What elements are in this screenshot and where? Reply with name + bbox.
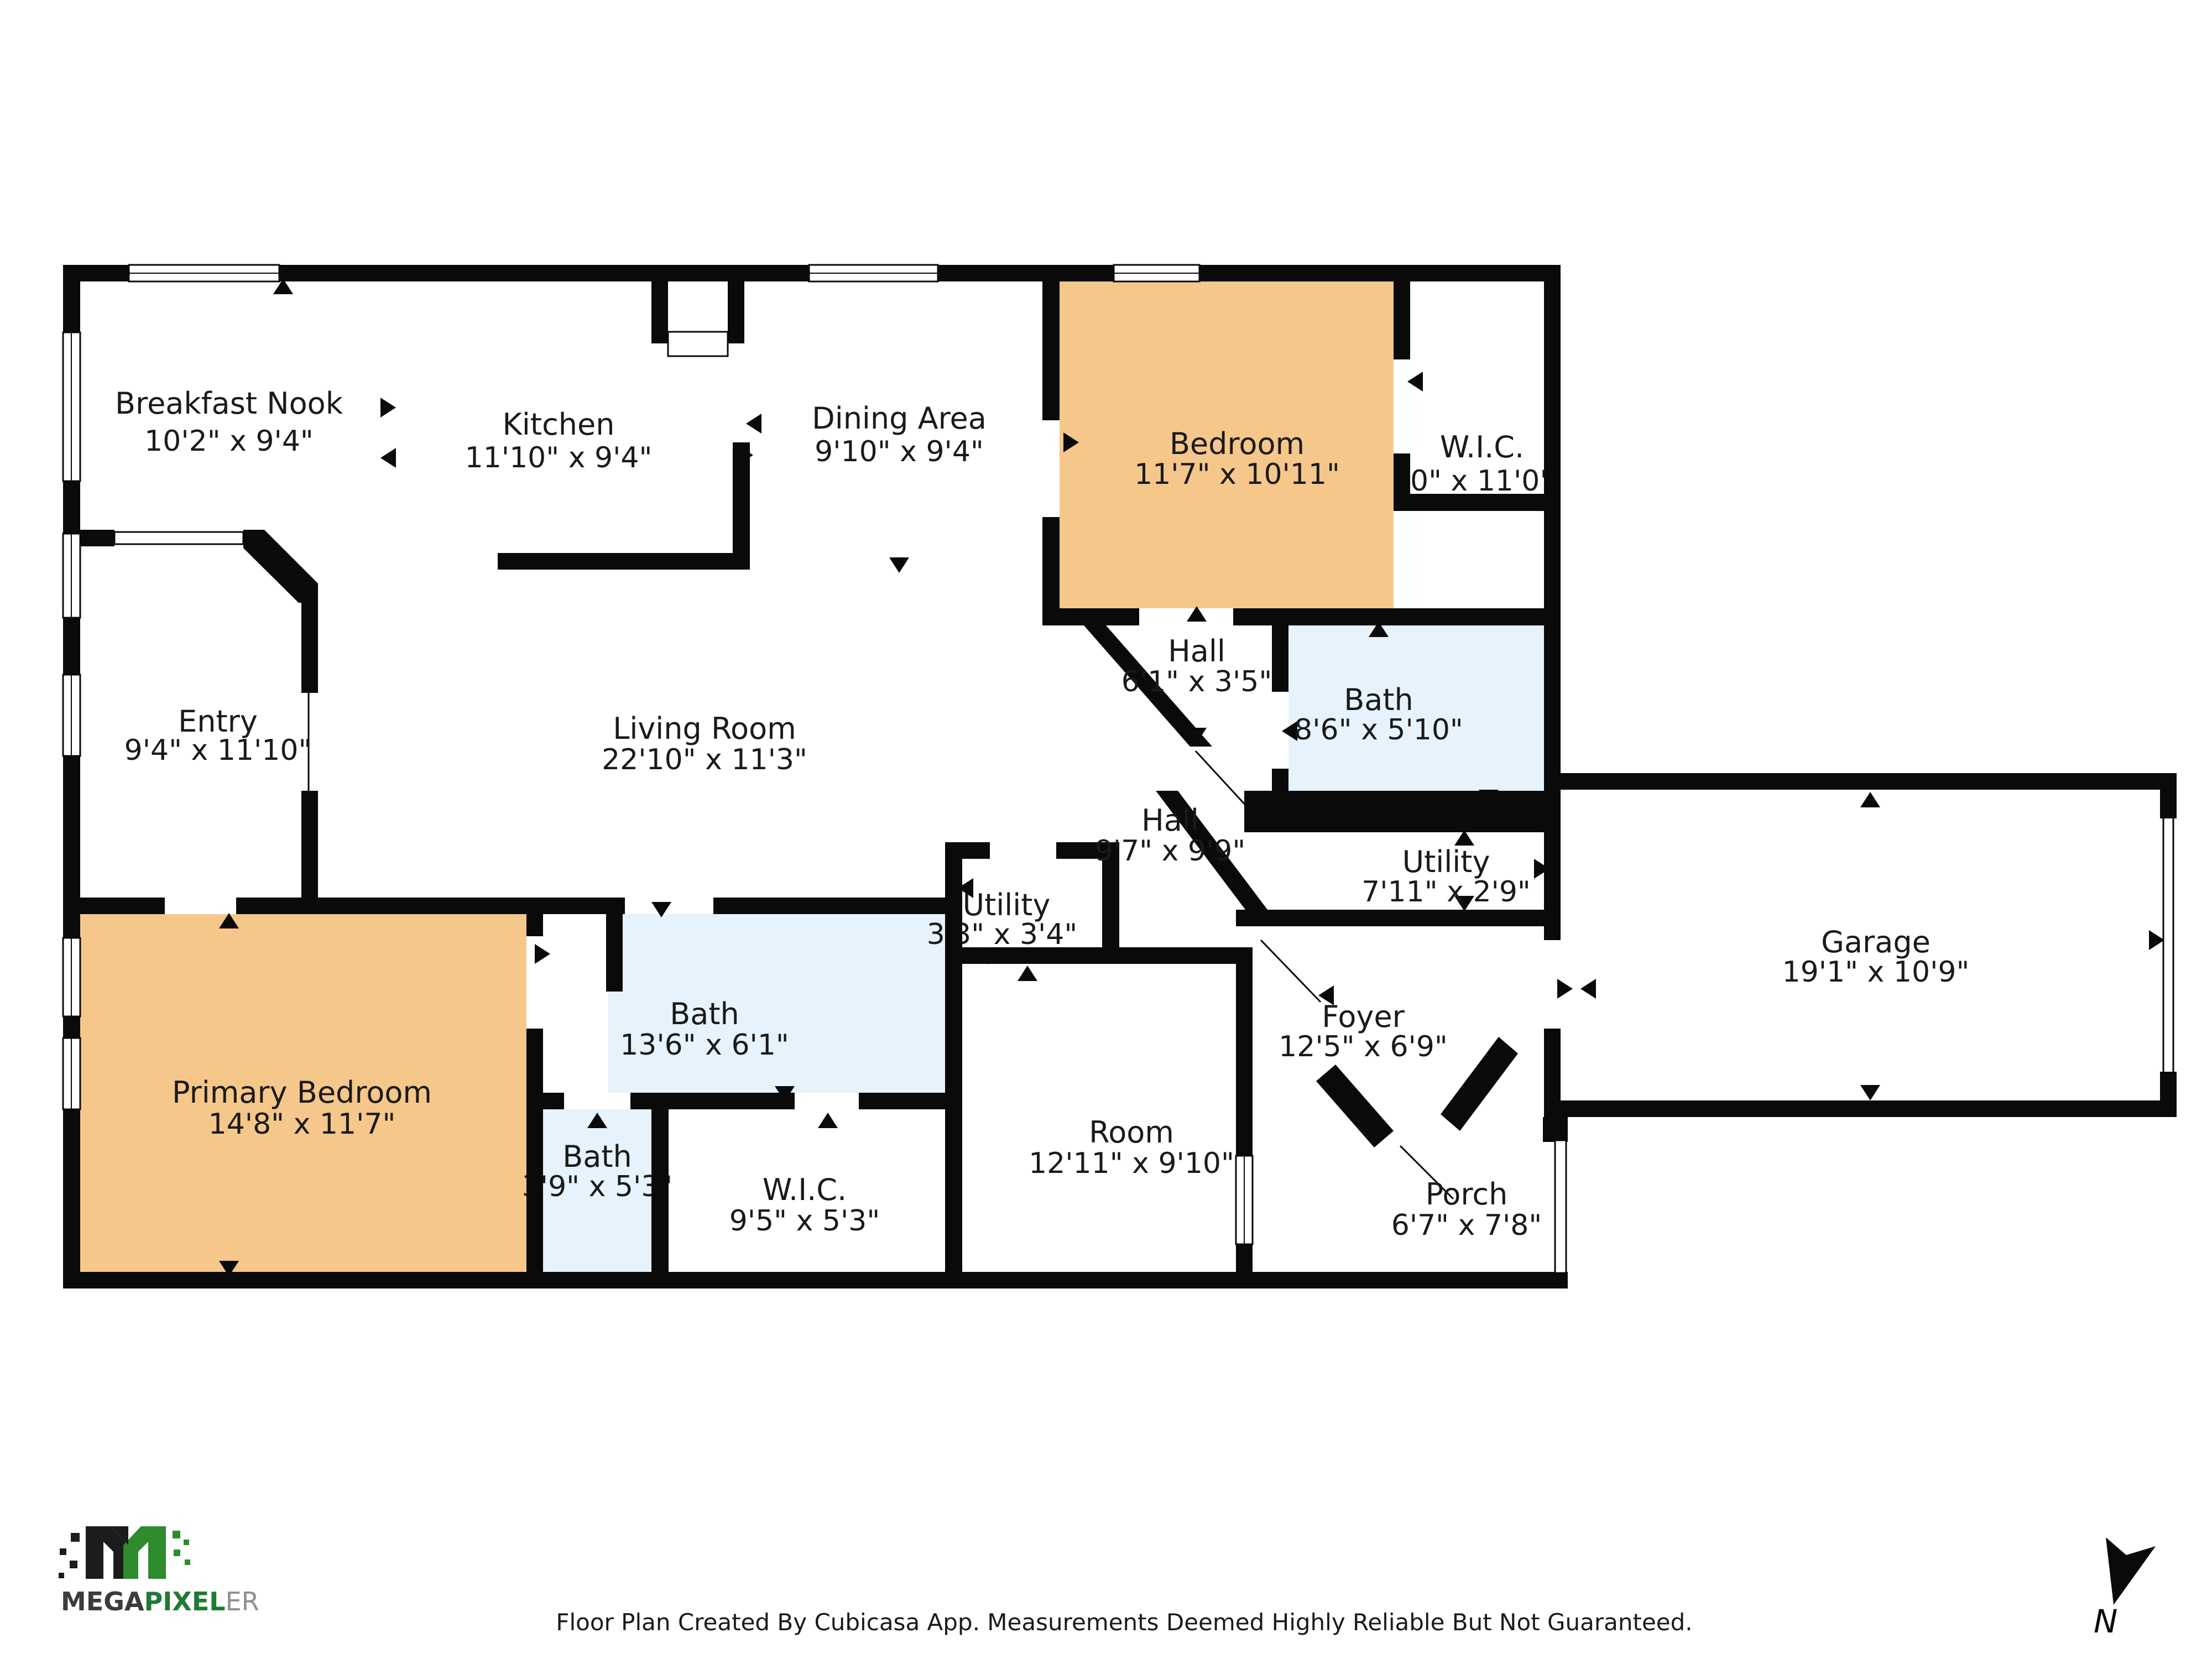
bath-small-dims: 3'9" x 5'3" [522, 1170, 673, 1203]
window-left-entry-2 [63, 675, 80, 756]
north-label: N [2094, 1603, 2117, 1640]
room-label-room: Room 12'11" x 9'10" [1029, 1115, 1234, 1180]
room-label-breakfast-nook: Breakfast Nook 10'2" x 9'4" [115, 386, 343, 458]
svg-text:Hall: Hall [1141, 803, 1199, 838]
svg-text:Living Room: Living Room [613, 711, 796, 746]
svg-text:Hall: Hall [1168, 634, 1225, 669]
window-top-breakfast [129, 265, 279, 281]
room-label-dining-area: Dining Area 9'10" x 9'4" [812, 401, 987, 468]
room-label-utility-right: Utility 7'11" x 2'9" [1361, 844, 1531, 909]
bath-upper-fill [1288, 625, 1544, 791]
svg-text:11'10" x 9'4": 11'10" x 9'4" [465, 441, 653, 474]
window-left-primary-2 [63, 1038, 80, 1109]
svg-text:Kitchen: Kitchen [503, 407, 615, 442]
room-label-hall-main: Hall 9'7" x 9'9" [1095, 803, 1246, 868]
svg-text:7'11" x 2'9": 7'11" x 2'9" [1361, 875, 1531, 909]
room-label-primary-bedroom: Primary Bedroom 14'8" x 11'7" [172, 1075, 432, 1141]
foyer-hall-door-leaf [1261, 940, 1321, 1002]
bath-main-fill [608, 914, 945, 1093]
svg-text:9'7" x 9'9": 9'7" x 9'9" [1095, 834, 1246, 868]
svg-text:6'1" x 3'5": 6'1" x 3'5" [1121, 665, 1272, 698]
north-arrow-icon [2106, 1537, 2156, 1605]
svg-text:9'10" x 9'4": 9'10" x 9'4" [815, 435, 984, 468]
svg-text:Bath: Bath [562, 1139, 632, 1174]
room-label-bath-small: Bath [562, 1139, 632, 1174]
svg-text:Utility: Utility [963, 888, 1051, 922]
window-top-bedroom [1114, 265, 1199, 281]
room-label-kitchen: Kitchen 11'10" x 9'4" [465, 407, 653, 474]
svg-text:Garage: Garage [1821, 925, 1931, 959]
room-label-entry: Entry 9'4" x 11'10" [124, 704, 312, 767]
breakfast-entry-opening [114, 532, 243, 544]
svg-text:11'7" x 10'11": 11'7" x 10'11" [1134, 458, 1340, 491]
svg-text:12'11" x 9'10": 12'11" x 9'10" [1029, 1147, 1234, 1180]
floor-plan: '0" x 11'0" 3'9" x 5'3" 3'3" x 3'4" [0, 0, 2212, 1659]
hall-small-door-leaf [1196, 751, 1248, 807]
svg-text:Breakfast Nook: Breakfast Nook [115, 386, 343, 421]
svg-text:19'1" x 10'9": 19'1" x 10'9" [1782, 956, 1970, 989]
room-label-wic-top: W.I.C. [1440, 430, 1524, 465]
window-left-breakfast [63, 332, 80, 481]
svg-text:W.I.C.: W.I.C. [1440, 430, 1524, 465]
window-left-primary-1 [63, 938, 80, 1016]
svg-text:22'10" x 11'3": 22'10" x 11'3" [602, 743, 807, 776]
room-label-porch: Porch 6'7" x 7'8" [1391, 1177, 1542, 1242]
megapixeler-logo: MEGAPIXELER [59, 1526, 259, 1616]
logo-text: MEGAPIXELER [61, 1587, 259, 1616]
svg-text:W.I.C.: W.I.C. [763, 1172, 847, 1207]
room-label-living-room: Living Room 22'10" x 11'3" [602, 711, 807, 776]
svg-text:Bedroom: Bedroom [1170, 426, 1305, 461]
svg-text:9'4" x 11'10": 9'4" x 11'10" [124, 734, 312, 767]
svg-text:6'7" x 7'8": 6'7" x 7'8" [1391, 1209, 1542, 1242]
svg-text:8'6" x 5'10": 8'6" x 5'10" [1294, 713, 1463, 747]
room-label-foyer: Foyer 12'5" x 6'9" [1279, 999, 1448, 1063]
svg-text:14'8" x 11'7": 14'8" x 11'7" [208, 1108, 396, 1141]
footer-disclaimer: Floor Plan Created By Cubicasa App. Meas… [556, 1609, 1692, 1636]
svg-text:9'5" x 5'3": 9'5" x 5'3" [729, 1204, 880, 1238]
room-label-hall-small: Hall 6'1" x 3'5" [1121, 634, 1272, 698]
north-compass: N [2094, 1537, 2156, 1640]
window-porch-room [1236, 1156, 1253, 1244]
window-top-dining [809, 265, 938, 281]
svg-text:Bath: Bath [670, 997, 739, 1031]
svg-text:Porch: Porch [1426, 1177, 1508, 1212]
svg-text:Bath: Bath [1344, 682, 1413, 717]
svg-text:Utility: Utility [1402, 844, 1490, 879]
svg-text:13'6" x 6'1": 13'6" x 6'1" [620, 1029, 789, 1062]
logo-m-icon [59, 1526, 190, 1579]
room-label-garage: Garage 19'1" x 10'9" [1782, 925, 1970, 989]
kitchen-niche [668, 332, 728, 356]
svg-text:10'2" x 9'4": 10'2" x 9'4" [144, 425, 314, 458]
svg-text:12'5" x 6'9": 12'5" x 6'9" [1279, 1030, 1448, 1063]
room-label-utility-small: Utility [963, 888, 1051, 922]
room-label-wic-bottom: W.I.C. 9'5" x 5'3" [729, 1172, 880, 1238]
svg-text:Room: Room [1089, 1115, 1174, 1150]
svg-text:Dining Area: Dining Area [812, 401, 987, 436]
garage-door [2160, 812, 2177, 1078]
svg-text:Foyer: Foyer [1322, 999, 1405, 1034]
svg-text:Primary Bedroom: Primary Bedroom [172, 1075, 432, 1110]
wic-top-dims: '0" x 11'0" [1402, 465, 1553, 498]
window-left-entry-1 [63, 534, 80, 618]
porch-right-rail [1555, 1140, 1566, 1273]
